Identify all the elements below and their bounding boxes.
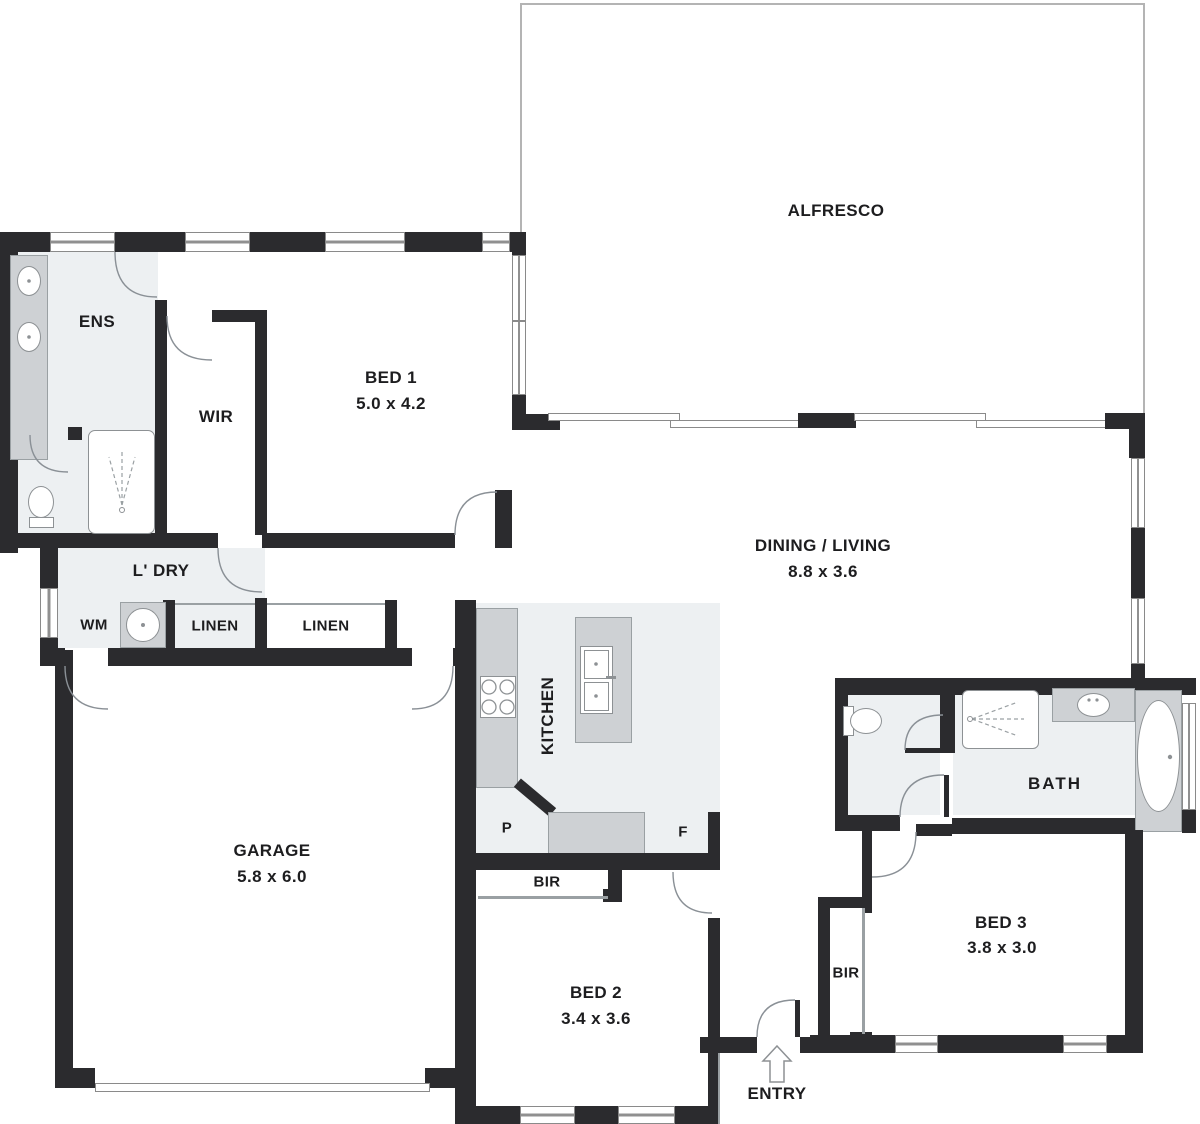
room-label-laundry: L' DRY [133, 561, 190, 581]
wall [940, 688, 955, 753]
wall [455, 853, 720, 870]
door-arc [412, 666, 453, 709]
alfresco-outline-left [520, 3, 522, 233]
bathtub [1137, 700, 1180, 812]
wall [798, 413, 856, 428]
wall [512, 232, 526, 255]
room-label-alfresco: ALFRESCO [788, 201, 885, 221]
wall [495, 490, 512, 548]
wall [262, 533, 455, 548]
wall [460, 1106, 720, 1124]
window [325, 232, 405, 252]
door-arc [872, 832, 916, 877]
shower [88, 430, 155, 534]
vanity-sink [17, 322, 41, 352]
cooktop [480, 676, 516, 718]
window [482, 232, 510, 252]
room-dims-bed2: 3.4 x 3.6 [561, 1009, 631, 1029]
room-label-garage: GARAGE [233, 841, 310, 861]
wall [385, 600, 397, 650]
label-linen-2: LINEN [303, 617, 350, 634]
label-entry: ENTRY [748, 1084, 807, 1104]
garage-door [95, 1083, 430, 1092]
window [618, 1106, 675, 1124]
wall [818, 897, 830, 1043]
vanity-sink [17, 266, 41, 296]
wall [952, 818, 1143, 834]
toilet-bowl [850, 708, 882, 734]
wall [700, 1037, 757, 1053]
wall [108, 648, 412, 666]
window [512, 255, 526, 321]
window [512, 321, 526, 395]
sliding-door-panel [548, 413, 680, 421]
bir-sliding-door [862, 908, 865, 1034]
wc-door-leaf [905, 748, 943, 753]
room-label-wir: WIR [199, 407, 233, 427]
label-bir-bed2: BIR [533, 873, 560, 890]
sliding-door-panel [976, 420, 1107, 428]
bir-door-track [478, 896, 608, 899]
window [1063, 1035, 1107, 1053]
wall [55, 650, 73, 1088]
alfresco-outline-top [520, 3, 1145, 5]
door-arc [167, 316, 212, 360]
wall [1182, 810, 1196, 833]
label-wm: WM [80, 616, 107, 633]
room-label-bed1: BED 1 [365, 368, 417, 388]
label-fridge: F [678, 823, 688, 840]
wall [68, 427, 82, 440]
kitchen-bench [548, 812, 645, 854]
door-arc [455, 492, 497, 535]
door-arc [673, 872, 712, 913]
window [185, 232, 250, 252]
wall [1131, 528, 1145, 598]
room-label-ens: ENS [79, 312, 115, 332]
kitchen-sink-basin [584, 682, 609, 711]
wall [1129, 413, 1145, 458]
wall [255, 310, 267, 535]
wall [155, 300, 167, 535]
linen-door-track [175, 603, 255, 605]
window [40, 588, 58, 638]
bath-door-leaf [944, 775, 949, 817]
room-label-kitchen: KITCHEN [538, 677, 558, 755]
entry-arrow-icon [763, 1046, 791, 1082]
label-bir-bed3: BIR [832, 964, 859, 981]
room-dims-dining-living: 8.8 x 3.6 [788, 562, 858, 582]
floor-plan: ALFRESCO BED 1 5.0 x 4.2 ENS WIR DINING … [0, 0, 1200, 1124]
label-linen-1: LINEN [192, 617, 239, 634]
toilet-bowl [28, 486, 54, 518]
wall [55, 1068, 95, 1088]
wall [916, 824, 952, 836]
window [50, 232, 115, 252]
window [1182, 703, 1196, 810]
porch-line [718, 1053, 720, 1124]
vanity-sink [1077, 693, 1110, 717]
wall [255, 598, 267, 650]
shower [962, 690, 1039, 749]
window [1131, 458, 1145, 528]
wall [1125, 830, 1143, 1035]
label-pantry: P [502, 819, 512, 836]
linen-door-track [267, 603, 385, 605]
room-dims-garage: 5.8 x 6.0 [237, 867, 307, 887]
toilet-tank [29, 517, 54, 528]
room-dims-bed1: 5.0 x 4.2 [356, 394, 426, 414]
room-label-bed3: BED 3 [975, 913, 1027, 933]
wall [708, 812, 720, 870]
room-label-bed2: BED 2 [570, 983, 622, 1003]
alfresco-outline-right [1143, 3, 1145, 415]
entry-door-leaf [795, 1000, 800, 1037]
room-dims-bed3: 3.8 x 3.0 [967, 938, 1037, 958]
window [1131, 598, 1145, 664]
sliding-door-panel [670, 420, 800, 428]
washing-machine-tub [126, 608, 160, 642]
window [895, 1035, 938, 1053]
door-arc [757, 1000, 795, 1037]
room-label-bath: BATH [1028, 774, 1082, 794]
wall [0, 533, 218, 548]
kitchen-sink-basin [584, 650, 609, 679]
window [520, 1106, 575, 1124]
room-label-dining-living: DINING / LIVING [755, 536, 891, 556]
sliding-door-panel [854, 413, 986, 421]
